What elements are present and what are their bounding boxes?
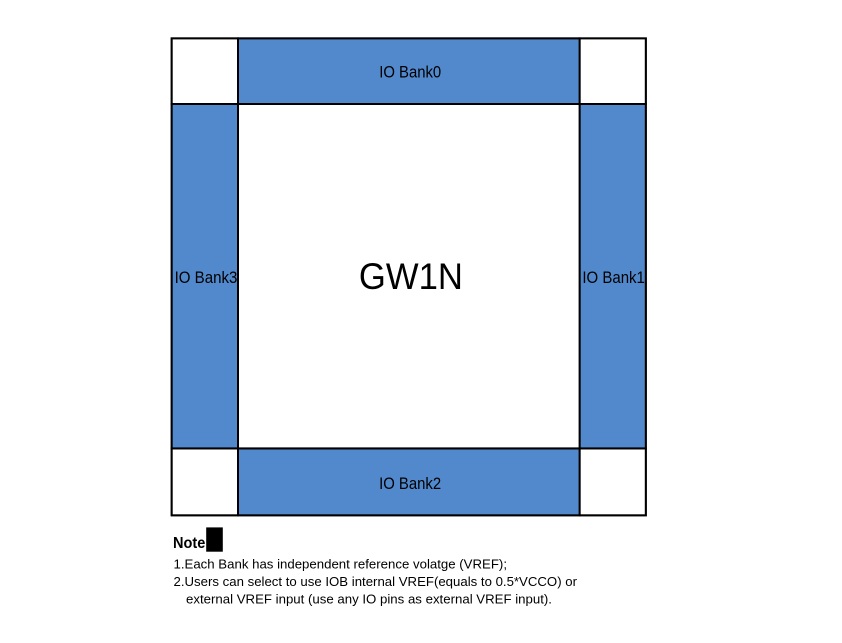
- svg-text:2.Users can select to use IOB: 2.Users can select to use IOB internal V…: [174, 574, 578, 589]
- svg-text:IO Bank3: IO Bank3: [175, 268, 238, 287]
- svg-text:IO Bank1: IO Bank1: [582, 268, 645, 287]
- svg-text:IO Bank2: IO Bank2: [379, 474, 441, 493]
- svg-text:Note: Note: [173, 535, 206, 552]
- svg-text:GW1N: GW1N: [359, 256, 463, 297]
- svg-text:external VREF input (use any I: external VREF input (use any IO pins as …: [186, 591, 552, 606]
- svg-text:1.Each Bank has independent re: 1.Each Bank has independent reference vo…: [174, 556, 507, 571]
- svg-text:IO Bank0: IO Bank0: [379, 62, 441, 81]
